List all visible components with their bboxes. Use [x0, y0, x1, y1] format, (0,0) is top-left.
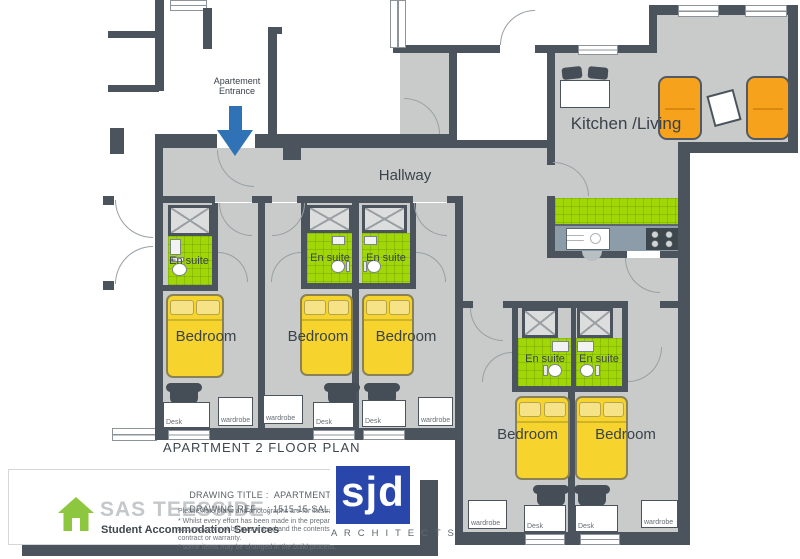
sjd-architects-label: A R C H I T E C T S [331, 528, 415, 539]
wall-segment [203, 8, 212, 49]
wall-segment [535, 45, 578, 53]
ensuite-label: En suite [518, 353, 572, 365]
wall-segment [463, 301, 473, 308]
wardrobe: wardrobe [218, 397, 253, 426]
wall-segment [660, 250, 690, 258]
sink [364, 236, 377, 245]
wall-pillar [103, 196, 114, 205]
wall-segment [159, 134, 217, 148]
toilet [580, 364, 594, 377]
wall-segment [155, 134, 163, 440]
door-swing-arc [115, 246, 153, 284]
wall-segment [268, 27, 282, 34]
entrance-label: Apartement Entrance [197, 76, 277, 96]
shower-tray [362, 205, 407, 233]
window [678, 5, 719, 17]
window [313, 430, 355, 440]
wall-segment [457, 140, 555, 148]
wall-segment [393, 45, 500, 53]
desk: Desk [313, 402, 354, 428]
sink [577, 341, 594, 352]
duvet-line [364, 319, 412, 321]
window [112, 428, 157, 441]
duvet-line [168, 319, 222, 321]
floor-plan-page: Desk wardrobe wardrobe Desk Desk wardrob… [0, 0, 800, 559]
kitchen-living-label: Kitchen /Living [563, 114, 689, 134]
kitchen-stool [588, 66, 609, 80]
shower-tray [307, 205, 352, 233]
desk-label: Desk [316, 419, 332, 427]
toilet [548, 364, 562, 377]
shower-tray [522, 308, 558, 338]
desk-label: Desk [527, 523, 543, 531]
wardrobe: wardrobe [263, 395, 303, 424]
wall-segment [255, 134, 457, 148]
pillow [603, 402, 625, 417]
door-swing-arc [115, 200, 153, 238]
wall-segment [649, 5, 678, 15]
window [390, 0, 406, 48]
sink [332, 236, 345, 245]
bedroom-label: Bedroom [168, 328, 244, 345]
pillow [544, 402, 566, 417]
ensuite-label: En suite [362, 252, 410, 264]
wall-segment [690, 142, 798, 153]
wardrobe-label: wardrobe [644, 519, 673, 527]
entrance-label-line1: Apartement [197, 76, 277, 86]
entrance-label-line2: Entrance [197, 86, 277, 96]
wall-segment [678, 142, 690, 545]
disclaimer-line: * some items may be changed in the build… [178, 544, 418, 553]
duvet-line [517, 421, 568, 423]
pillow [304, 300, 326, 315]
desk: Desk [362, 400, 406, 427]
bedroom-label: Bedroom [480, 426, 575, 443]
desk-label: Desk [578, 523, 594, 531]
bedroom-label: Bedroom [280, 328, 356, 345]
hallway-label: Hallway [360, 167, 450, 184]
wall-segment [503, 301, 628, 308]
wall-segment [455, 196, 463, 545]
wall-segment [301, 283, 359, 289]
shower-tray [168, 205, 212, 236]
wall-segment [155, 0, 164, 91]
window [745, 5, 787, 17]
wardrobe-label: wardrobe [221, 417, 250, 425]
desk: Desk [163, 402, 210, 428]
ensuite-label: En suite [574, 353, 624, 365]
wall-pillar [103, 281, 114, 290]
pillow [366, 300, 387, 315]
desk: Desk [575, 505, 618, 532]
wardrobe: wardrobe [468, 500, 507, 529]
sjd-logo-text: sjd [336, 466, 410, 518]
entrance-arrow [229, 106, 242, 132]
sjd-logo: sjd [336, 466, 410, 524]
pillow [389, 300, 410, 315]
window [168, 430, 210, 440]
pillow [519, 402, 541, 417]
duvet-line [302, 319, 351, 321]
wall-segment [163, 285, 218, 291]
ensuite-label: En suite [307, 252, 353, 264]
pillow [196, 300, 220, 315]
wall-segment [258, 196, 265, 428]
window [363, 430, 405, 440]
kitchen-hob [646, 228, 678, 250]
sink [552, 341, 569, 352]
pillow [579, 402, 601, 417]
duvet-line [577, 421, 626, 423]
desk-label: Desk [166, 419, 182, 427]
bedroom-label: Bedroom [368, 328, 444, 345]
door-swing-arc [500, 10, 535, 45]
entrance-arrow-head [217, 130, 253, 156]
wardrobe: wardrobe [418, 397, 453, 426]
plan-caption: APARTMENT 2 FLOOR PLAN [163, 440, 361, 455]
kitchen-stool [561, 66, 582, 80]
desk: Desk [524, 505, 566, 532]
sink [170, 239, 181, 255]
desk-chair [578, 490, 606, 506]
window [578, 45, 618, 55]
ensuite-label: En suite [166, 255, 212, 267]
shower-tray [577, 308, 613, 338]
wardrobe-label: wardrobe [471, 520, 500, 528]
kitchen-table [560, 80, 610, 108]
pillow [328, 300, 350, 315]
toilet [595, 365, 600, 376]
wall-segment [163, 196, 215, 203]
wall-segment [108, 31, 159, 38]
window [170, 0, 207, 11]
wardrobe-label: wardrobe [421, 417, 450, 425]
pillow [170, 300, 194, 315]
wall-segment [660, 301, 678, 308]
wall-segment [449, 53, 457, 140]
wall-segment [547, 53, 555, 165]
wall-segment [108, 85, 159, 92]
kitchen-sink [566, 228, 610, 250]
window [525, 534, 565, 545]
wardrobe-label: wardrobe [266, 415, 295, 423]
desk-label: Desk [365, 418, 381, 426]
lobby-floor [463, 196, 555, 258]
wall-segment [283, 148, 301, 160]
sas-house-icon [56, 494, 96, 534]
wardrobe: wardrobe [641, 500, 678, 528]
sofa [746, 76, 790, 140]
desk-chair [537, 490, 565, 506]
wall-segment [359, 283, 416, 289]
kitchen-splashback [555, 198, 678, 224]
window [580, 534, 620, 545]
wall-pillar [110, 128, 124, 154]
wall-segment [717, 5, 745, 15]
wall-segment [455, 532, 690, 545]
wall-segment [547, 196, 555, 258]
bedroom-label: Bedroom [578, 426, 673, 443]
